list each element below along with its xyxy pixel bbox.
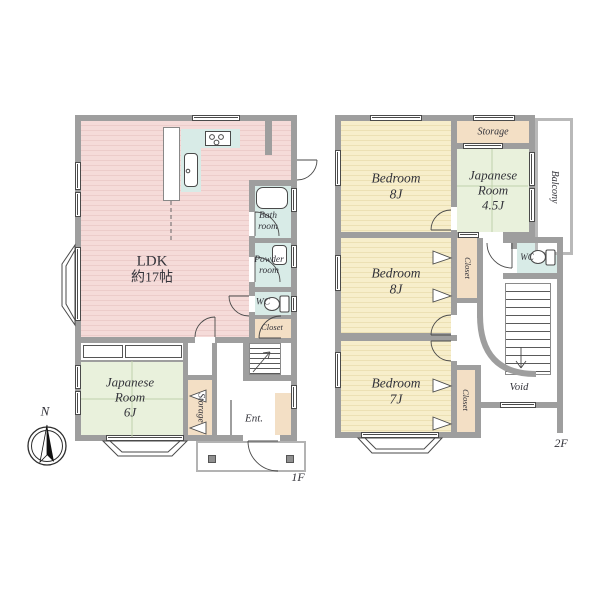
closet-2f-middle-label: Closet	[462, 257, 472, 279]
wall	[243, 375, 297, 381]
kitchen-partition	[163, 127, 180, 201]
bedroom-8j-middle-label: Bedroom8J	[372, 265, 421, 296]
storage-2f-label: Storage	[477, 126, 508, 138]
japanese-room-45j-label: JapaneseRoom4.5J	[469, 169, 517, 214]
window	[291, 296, 297, 312]
window	[500, 402, 536, 408]
stairs-2f	[505, 283, 551, 375]
wall	[477, 238, 483, 318]
window	[335, 255, 341, 291]
window	[291, 245, 297, 268]
bedroom-8j-top-label: Bedroom8J	[372, 170, 421, 201]
powder-room-label: Powderroom	[254, 255, 284, 277]
balcony-label: Balcony	[548, 171, 560, 204]
bedroom-7j-label: Bedroom7J	[372, 375, 421, 406]
wall	[81, 360, 183, 362]
window	[361, 432, 439, 438]
window	[75, 192, 81, 217]
window	[335, 150, 341, 186]
wall	[503, 273, 563, 279]
wall	[249, 338, 297, 343]
ldk-label: LDK約17帖	[131, 253, 173, 286]
hall-opening	[479, 232, 503, 238]
window	[291, 188, 297, 212]
window	[463, 143, 503, 149]
wall	[451, 298, 483, 303]
window	[75, 162, 81, 190]
stairs-1f	[249, 343, 281, 375]
wall	[451, 361, 457, 432]
wall	[183, 375, 217, 380]
window	[370, 115, 422, 121]
window	[75, 365, 81, 389]
wall	[265, 121, 272, 155]
window	[106, 435, 184, 441]
bath-room-label: Bathroom	[258, 211, 278, 233]
window	[473, 115, 515, 121]
window	[75, 391, 81, 415]
closet-2f-bottom-label: Closet	[460, 389, 470, 411]
window	[75, 247, 81, 321]
wall	[249, 180, 297, 186]
closet-1f-label: Closet	[261, 323, 283, 333]
wall	[249, 287, 297, 292]
shoe-cabinet	[275, 393, 291, 437]
void-label: Void	[510, 382, 529, 394]
kitchen-sink-icon	[184, 153, 198, 187]
compass-icon	[28, 425, 66, 465]
wall	[511, 243, 517, 249]
wall	[75, 115, 297, 121]
oshiire-right	[125, 345, 182, 358]
wall	[249, 315, 297, 319]
wall	[212, 343, 217, 437]
oshiire-left	[83, 345, 123, 358]
wall	[341, 333, 451, 341]
window	[192, 115, 240, 121]
wall	[75, 337, 195, 343]
stove-icon	[205, 131, 231, 146]
wc-1f-label: WC	[256, 298, 270, 309]
storage-1f-label: Storage	[195, 393, 206, 423]
window	[529, 188, 535, 222]
window	[529, 152, 535, 186]
porch-post	[286, 455, 294, 463]
window	[458, 232, 479, 238]
wc-2f-label: WC	[520, 252, 534, 262]
bathtub-icon	[256, 187, 288, 209]
wall	[451, 335, 457, 341]
wall	[243, 343, 249, 375]
wall	[183, 343, 188, 437]
floor2-label: 2F	[554, 437, 567, 451]
wall	[249, 186, 255, 212]
window	[291, 385, 297, 409]
wall	[215, 337, 255, 343]
porch-post	[208, 455, 216, 463]
wall	[475, 365, 481, 432]
wall	[451, 121, 457, 207]
entrance-label: Ent.	[245, 413, 263, 426]
wall	[249, 238, 297, 243]
entrance-step-line	[230, 400, 232, 435]
japanese-room-6j-label: JapaneseRoom6J	[106, 376, 154, 421]
north-label: N	[41, 405, 50, 420]
window	[335, 352, 341, 388]
floor1-label: 1F	[291, 471, 304, 485]
